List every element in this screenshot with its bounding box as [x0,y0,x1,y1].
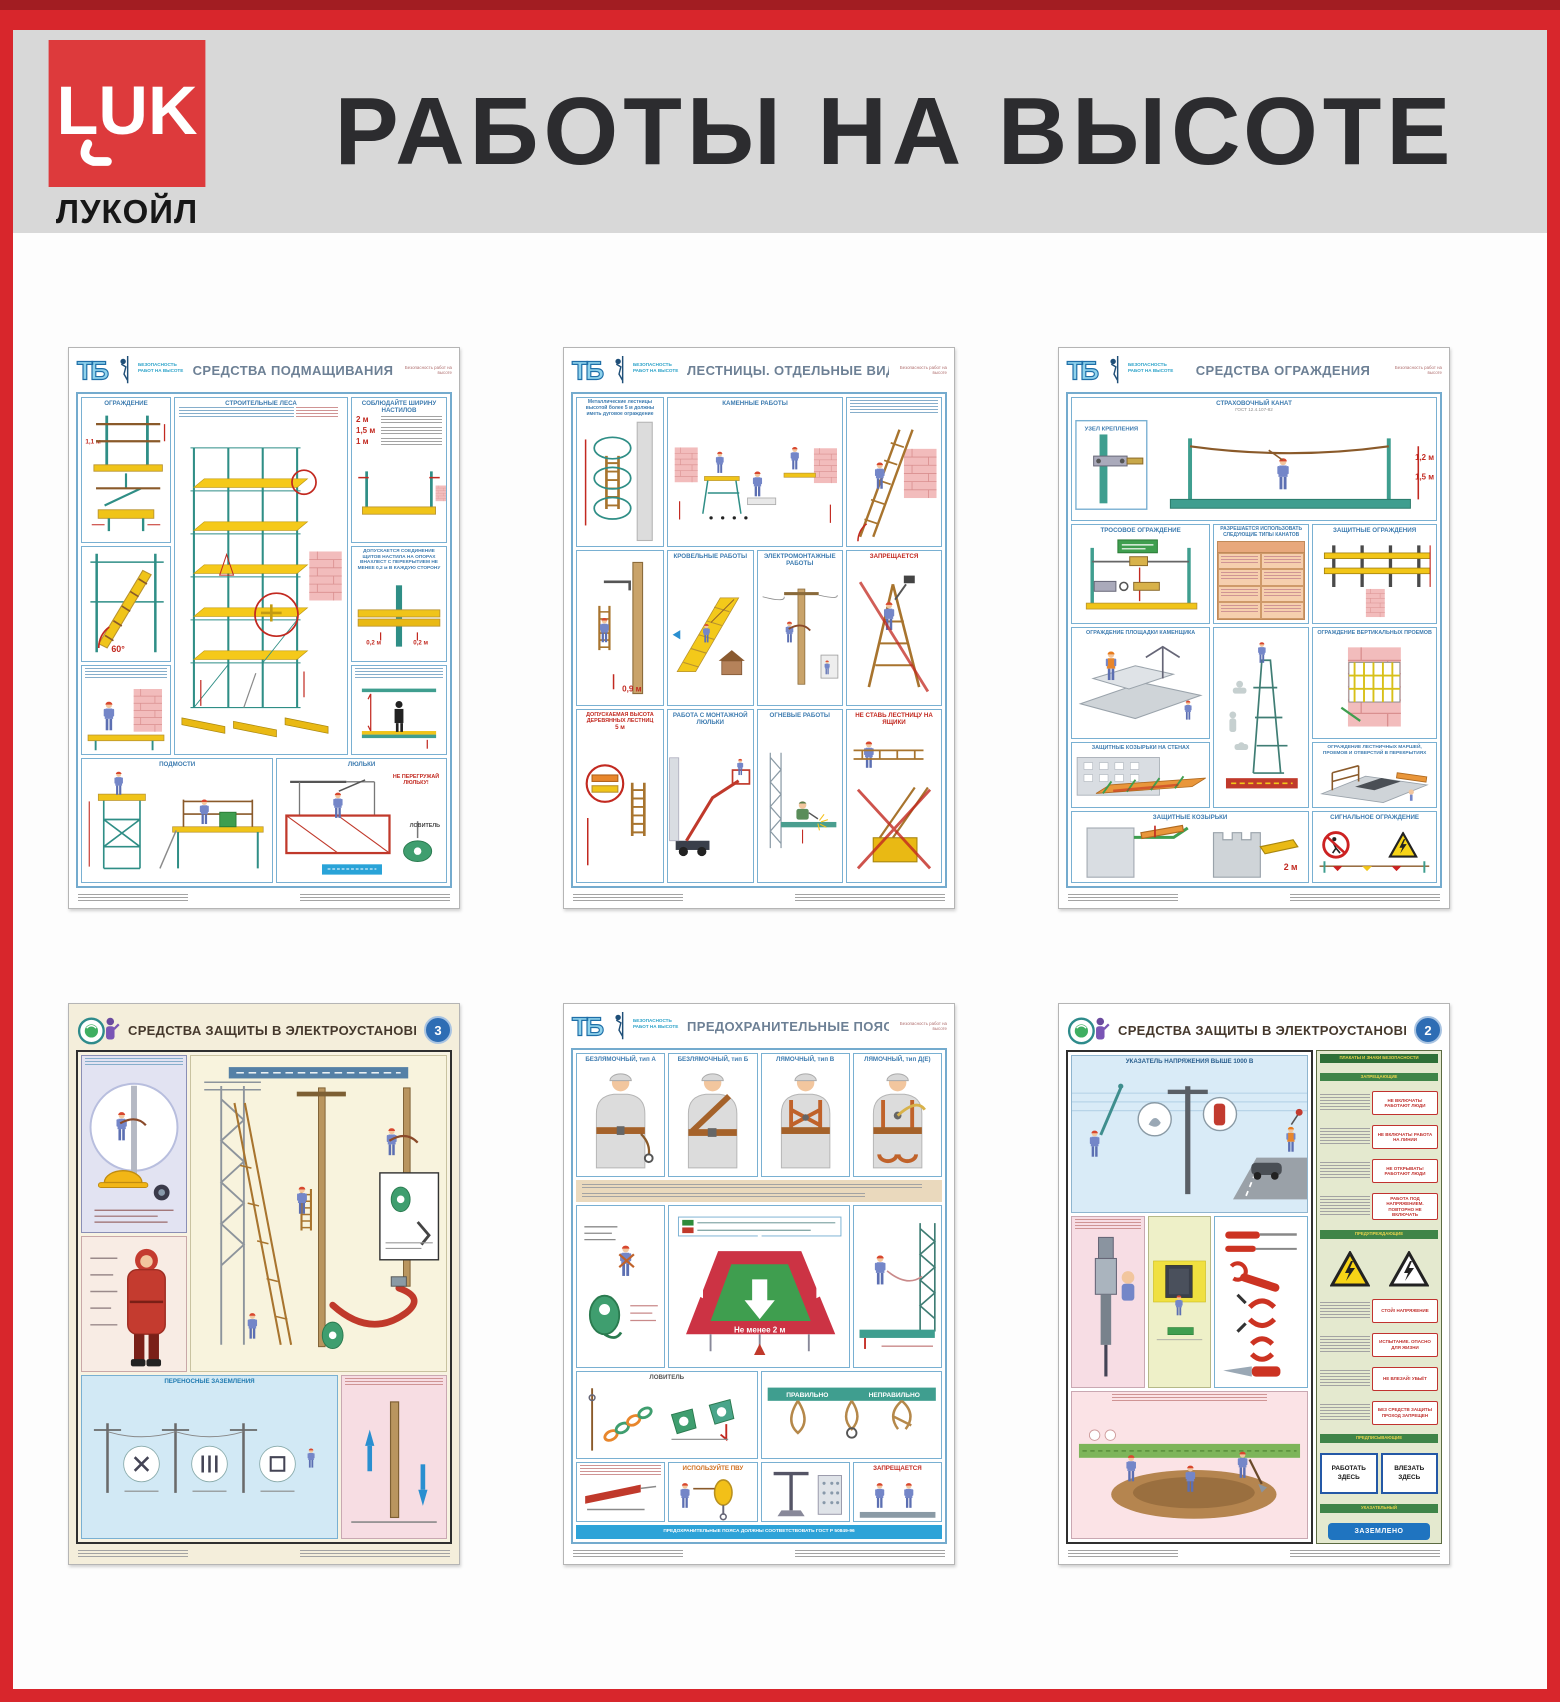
rabotat-zdes-sign: РАБОТАТЬ ЗДЕСЬ [1320,1453,1378,1494]
frame-top-line [0,0,1560,10]
welding-illustration [758,719,843,882]
electric-hazard-white-icon [1389,1251,1429,1287]
zazemleno-sign: ЗАЗЕМЛЕНО [1328,1523,1430,1540]
panel-worker-truss [853,1205,942,1368]
panel-ne-stav-lestnitsu: НЕ СТАВЬ ЛЕСТНИЦУ НА ЯЩИКИ [846,709,942,883]
safety-sign: БЕЗ СРЕДСТВ ЗАЩИТЫ ПРОХОД ЗАПРЕЩЕН [1372,1401,1438,1425]
safety-sign: НЕ ВКЛЮЧАТЬ! РАБОТАЮТ ЛЮДИ [1372,1091,1438,1115]
stand-header: LUK ЛУКОЙЛ РАБОТЫ НА ВЫСОТЕ [13,30,1547,233]
panel-belt-type-b: БЕЗЛЯМОЧНЫЙ, тип Б [668,1053,757,1177]
voltage-indicator-illustration [1072,1065,1307,1212]
poster5-footer [571,1544,947,1560]
digging-illustration [1072,1402,1307,1538]
panel-anchor-bar [576,1462,665,1522]
panel-kamennye-raboty: КАМЕННЫЕ РАБОТЫ [667,397,843,547]
signs-group-1: ЗАПРЕЩАЮЩИЕ [1320,1073,1438,1082]
warning-triangles [1320,1249,1438,1289]
panel-t-stand [761,1462,850,1522]
cage-ladder-illustration [577,417,663,546]
stair-illustration: 60° [82,547,170,661]
t-stand-illustration [762,1463,849,1521]
panel-kozyrki-na-stenah: ЗАЩИТНЫЕ КОЗЫРЬКИ НА СТЕНАХ [1071,742,1210,808]
poster4-footer [76,1544,452,1560]
poster6-title: СРЕДСТВА ЗАЩИТЫ В ЭЛЕКТРОУСТАНОВКАХ [1118,1023,1406,1038]
panel-pole-climb-circle [81,1055,187,1233]
canopy-illustration: 2 м [1072,821,1308,882]
safety-rope-illustration: УЗЕЛ КРЕПЛЕНИЯ 1,2 м 1,5 м [1072,412,1436,520]
roofing-illustration [668,560,753,705]
belt-a-illustration [577,1063,664,1176]
panel-title: ЗАЩИТНЫЕ КОЗЫРЬКИ НА СТЕНАХ [1072,743,1209,751]
sign-row: НЕ ВКЛЮЧАТЬ! РАБОТАЮТ ЛЮДИ [1320,1091,1438,1115]
poster4-header: СРЕДСТВА ЗАЩИТЫ В ЭЛЕКТРОУСТАНОВКАХ 3 [76,1010,452,1050]
sign-row: РАБОТА ПОД НАПРЯЖЕНИЕМ. ПОВТОРНО НЕ ВКЛЮ… [1320,1193,1438,1221]
panel-title: ОГРАЖДЕНИЕ ПЛОЩАДКИ КАМЕНЩИКА [1072,628,1209,636]
panel-carabiner [576,1205,665,1368]
panel-note: ДОПУСКАЕТСЯ СОЕДИНЕНИЕ ЩИТОВ НАСТИЛА НА … [352,547,446,571]
poster2-footer [571,888,947,904]
prescriptive-signs: РАБОТАТЬ ЗДЕСЬ ВЛЕЗАТЬ ЗДЕСЬ [1320,1453,1438,1494]
panel-lyulki: ЛЮЛЬКИ НЕ ПЕРЕГРУЖАЙ ЛЮЛЬКУ! ЛОВИТЕЛЬ [276,758,447,883]
panel-title: ОГРАЖДЕНИЕ ВЕРТИКАЛЬНЫХ ПРОЕМОВ [1313,628,1436,636]
panel-zapreshchaetsya: ЗАПРЕЩАЕТСЯ [853,1462,942,1522]
podmosti-illustration [82,768,272,882]
sign-row: НЕ ВКЛЮЧАТЬ! РАБОТА НА ЛИНИИ [1320,1125,1438,1149]
poster6-left-column: УКАЗАТЕЛЬ НАПРЯЖЕНИЯ ВЫШЕ 1000 В [1066,1050,1313,1544]
round-safety-logo-icon [1066,1013,1110,1047]
panel-title: СТРОИТЕЛЬНЫЕ ЛЕСА [175,398,347,407]
belt-type-label: БЕЗЛЯМОЧНЫЙ, тип А [577,1054,664,1063]
belt-type-label: ЛЯМОЧНЫЙ, тип В [762,1054,849,1063]
panel-zashchitnye-ograzhdeniya: ЗАЩИТНЫЕ ОГРАЖДЕНИЯ [1312,524,1437,624]
panel-title: ЗАЩИТНЫЕ КОЗЫРЬКИ [1072,812,1308,821]
pole-arrows-illustration [342,1386,446,1538]
signal-fence-illustration [1313,821,1436,882]
panel-title: ОГРАЖДЕНИЕ ЛЕСТНИЧНЫХ МАРШЕЙ, ПРОЕМОВ И … [1313,743,1436,756]
panel-belt-type-d: ЛЯМОЧНЫЙ, тип Д(Е) [853,1053,942,1177]
svg-text:0,2 м: 0,2 м [366,640,381,647]
series-note: БЕЗОПАСНОСТЬ РАБОТ НА ВЫСОТЕ [138,362,188,373]
panel-belt-type-a: БЕЗЛЯМОЧНЫЙ, тип А [576,1053,665,1177]
stand-title: РАБОТЫ НА ВЫСОТЕ [248,30,1542,233]
panel-title: СТРАХОВОЧНЫЙ КАНАТ [1072,398,1436,407]
poster5-gost-band: ПРЕДОХРАНИТЕЛЬНЫЕ ПОЯСА ДОЛЖНЫ СООТВЕТСТ… [576,1525,942,1539]
belt-v-illustration [762,1063,849,1176]
svg-text:ТБ: ТБ [1067,356,1098,386]
mason-illustration [82,680,170,754]
svg-text:ТБ: ТБ [572,1012,603,1042]
pole-work-illustration [758,567,843,705]
pole-scene-illustration [191,1056,446,1371]
safety-sign: СТОЙ! НАПРЯЖЕНИЕ [1372,1299,1438,1323]
panel-sling-right-wrong: ПРАВИЛЬНО НЕПРАВИЛЬНО [761,1371,943,1459]
panel-switchboard-worker [1148,1216,1211,1388]
boom-lift-illustration [668,726,753,882]
posters-grid: ТБ БЕЗОПАСНОСТЬ РАБОТ НА ВЫСОТЕ СРЕДСТВА… [13,233,1547,1565]
poster6-body: УКАЗАТЕЛЬ НАПРЯЖЕНИЯ ВЫШЕ 1000 В [1066,1050,1442,1544]
carabiner-illustration [577,1206,664,1367]
belt-b-illustration [669,1063,756,1176]
panel-shirina-nastilov: СОБЛЮДАЙТЕ ШИРИНУ НАСТИЛОВ 2 м 1,5 м 1 м [351,397,447,543]
panel-title: ЗАПРЕЩАЕТСЯ [847,551,941,560]
round-safety-logo-icon [76,1013,120,1047]
panel-montazhnaya-lyulka: РАБОТА С МОНТАЖНОЙ ЛЮЛЬКИ [667,709,754,883]
poster-zashchita-elektro-3[interactable]: СРЕДСТВА ЗАЩИТЫ В ЭЛЕКТРОУСТАНОВКАХ 3 [68,1003,460,1565]
floors-illustration [352,678,446,754]
panel-stroitelnye-lesa: СТРОИТЕЛЬНЫЕ ЛЕСА [174,397,348,755]
corner-note: Безопасность работ на высоте [893,1021,947,1031]
stand-board: LUK ЛУКОЙЛ РАБОТЫ НА ВЫСОТЕ ТБ БЕЗОПАСНО… [13,30,1547,1689]
poster1-footer [76,888,452,904]
series-note: БЕЗОПАСНОСТЬ РАБОТ НА ВЫСОТЕ [1128,362,1178,373]
vlezat-zdes-sign: ВЛЕЗАТЬ ЗДЕСЬ [1381,1453,1439,1494]
panel-pole-work-scene [190,1055,447,1372]
panel-insulated-tools [1214,1216,1308,1388]
panel-protective-suit [81,1236,187,1372]
poster3-body: СТРАХОВОЧНЫЙ КАНАТ ГОСТ 12.4.107-82 УЗЕЛ… [1066,392,1442,888]
panel-worker-bricks [81,665,171,755]
panel-title: ЭЛЕКТРОМОНТАЖНЫЕ РАБОТЫ [758,551,843,567]
safety-sign: РАБОТА ПОД НАПРЯЖЕНИЕМ. ПОВТОРНО НЕ ВКЛЮ… [1372,1193,1438,1221]
poster4-number-badge: 3 [424,1016,452,1044]
leaning-ladder-illustration [847,414,941,546]
panel-title: ТРОСОВОЕ ОГРАЖДЕНИЕ [1072,525,1209,534]
stepladder-illustration [847,560,941,705]
panel-title: ЛОВИТЕЛЬ [577,1372,757,1381]
panel-title: ОГНЕВЫЕ РАБОТЫ [758,710,843,719]
safety-sign: НЕ ОТКРЫВАТЬ! РАБОТАЮТ ЛЮДИ [1372,1159,1438,1183]
safety-sign: НЕ ВЛЕЗАЙ! УБЬЁТ [1372,1367,1438,1391]
lukoil-company-name: ЛУКОЙЛ [48,193,206,231]
poster6-middle-row [1071,1216,1308,1388]
panel-note: Металлические лестницы высотой более 5 м… [577,398,663,417]
opening-guard-illustration [1313,636,1436,738]
svg-text:ПРАВИЛЬНО: ПРАВИЛЬНО [786,1392,828,1399]
poster5-body: БЕЗЛЯМОЧНЫЙ, тип А БЕЗЛЯМОЧНЫЙ, тип Б [571,1048,947,1544]
truss-tie-illustration [854,1206,941,1367]
panel-zapreshchaetsya-hammer: ЗАПРЕЩАЕТСЯ [846,550,942,706]
panel-lestnichnye-marshi: ОГРАЖДЕНИЕ ЛЕСТНИЧНЫХ МАРШЕЙ, ПРОЕМОВ И … [1312,742,1437,808]
panel-title: ПЕРЕНОСНЫЕ ЗАЗЕМЛЕНИЯ [82,1376,337,1385]
cable-guard-illustration [1072,534,1209,623]
panel-vertikalnye-proemy: ОГРАЖДЕНИЕ ВЕРТИКАЛЬНЫХ ПРОЕМОВ [1312,627,1437,739]
lukoil-mark: LUK [57,72,198,149]
poster3-header: ТБ БЕЗОПАСНОСТЬ РАБОТ НА ВЫСОТЕ СРЕДСТВА… [1066,354,1442,392]
ladder-on-crate-illustration [847,726,941,882]
svg-text:60°: 60° [111,644,125,654]
svg-text:Не менее 2 м: Не менее 2 м [734,1325,786,1334]
panel-title: РАБОТА С МОНТАЖНОЙ ЛЮЛЬКИ [668,710,753,726]
poster4-body: ПЕРЕНОСНЫЕ ЗАЗЕМЛЕНИЯ [76,1050,452,1544]
panel-title: ЗАЩИТНЫЕ ОГРАЖДЕНИЯ [1313,525,1436,534]
signs-group-2: ПРЕДУПРЕЖДАЮЩИЕ [1320,1230,1438,1239]
panel-platform-diagram: Не менее 2 м [668,1205,850,1368]
signs-group-4: УКАЗАТЕЛЬНЫЙ [1320,1504,1438,1513]
svg-text:УЗЕЛ КРЕПЛЕНИЯ: УЗЕЛ КРЕПЛЕНИЯ [1085,427,1139,433]
tb-logo-icon: ТБ [571,354,629,387]
poster-sredstva-podmashchivaniya[interactable]: ТБ БЕЗОПАСНОСТЬ РАБОТ НА ВЫСОТЕ СРЕДСТВА… [68,347,460,909]
sign-row: ИСПЫТАНИЕ. ОПАСНО ДЛЯ ЖИЗНИ [1320,1333,1438,1357]
poster2-body: Металлические лестницы высотой более 5 м… [571,392,947,888]
panel-title: КРОВЕЛЬНЫЕ РАБОТЫ [668,551,753,560]
poster5-header: ТБ БЕЗОПАСНОСТЬ РАБОТ НА ВЫСОТЕ ПРЕДОХРА… [571,1010,947,1048]
wooden-ladder-illustration [577,732,663,882]
belt-type-label: ЛЯМОЧНЫЙ, тип Д(Е) [854,1054,941,1063]
svg-text:НЕПРАВИЛЬНО: НЕПРАВИЛЬНО [868,1392,919,1399]
poster1-header: ТБ БЕЗОПАСНОСТЬ РАБОТ НА ВЫСОТЕ СРЕДСТВА… [76,354,452,392]
poster3-title: СРЕДСТВА ОГРАЖДЕНИЯ [1182,363,1384,378]
pvu-illustration [669,1472,756,1521]
panel-title: УКАЗАТЕЛЬ НАПРЯЖЕНИЯ ВЫШЕ 1000 В [1072,1056,1307,1065]
wall-canopy-illustration [1072,751,1209,807]
series-note: БЕЗОПАСНОСТЬ РАБОТ НА ВЫСОТЕ [633,1018,683,1029]
sign-row: НЕ ВЛЕЗАЙ! УБЬЁТ [1320,1367,1438,1391]
poster-zashchita-elektro-2[interactable]: СРЕДСТВА ЗАЩИТЫ В ЭЛЕКТРОУСТАНОВКАХ 2 УК… [1058,1003,1450,1565]
belts-caption-band [576,1180,942,1202]
panel-stair-60: 60° [81,546,171,662]
series-note: БЕЗОПАСНОСТЬ РАБОТ НА ВЫСОТЕ [633,362,683,373]
height-value: 5 м [577,724,663,731]
panel-zashchitnye-kozyrki: ЗАЩИТНЫЕ КОЗЫРЬКИ 2 м [1071,811,1309,883]
tb-logo-icon: ТБ [1066,354,1124,387]
fall-sequence-illustration [1214,628,1308,807]
guardrail-illustration: 1,1 м [82,407,170,542]
sign-row: СТОЙ! НАПРЯЖЕНИЕ [1320,1299,1438,1323]
two-workers-beam-illustration [854,1472,941,1521]
panel-title: ЛЮЛЬКИ [277,759,446,768]
panel-title: ЗАПРЕЩАЕТСЯ [854,1463,941,1472]
poster2-title: ЛЕСТНИЦЫ. ОТДЕЛЬНЫЕ ВИДЫ РАБОТ [687,363,889,378]
mason-platform-illustration [1072,636,1209,738]
sign-row: НЕ ОТКРЫВАТЬ! РАБОТАЮТ ЛЮДИ [1320,1159,1438,1183]
panel-ognevye: ОГНЕВЫЕ РАБОТЫ [757,709,844,883]
panel-title: ДОПУСКАЕМАЯ ВЫСОТА ДЕРЕВЯННЫХ ЛЕСТНИЦ [577,710,663,724]
protective-fence-illustration [1313,534,1436,623]
platform-diagram-illustration: Не менее 2 м [669,1206,849,1367]
switchboard-illustration [1149,1217,1210,1387]
electric-hazard-icon [1330,1251,1370,1287]
belt-d-illustration [854,1063,941,1176]
suit-illustration [82,1237,186,1371]
overload-warning: НЕ ПЕРЕГРУЖАЙ ЛЮЛЬКУ! [388,774,444,786]
panel-signalnoe: СИГНАЛЬНОЕ ОГРАЖДЕНИЕ [1312,811,1437,883]
belt-type-label: БЕЗЛЯМОЧНЫЙ, тип Б [669,1054,756,1063]
panel-canat-table: РАЗРЕШАЕТСЯ ИСПОЛЬЗОВАТЬ СЛЕДУЮЩИЕ ТИПЫ … [1213,524,1309,624]
panel-grounding-order [341,1375,447,1539]
panel-perenosnye-zazemleniya: ПЕРЕНОСНЫЕ ЗАЗЕМЛЕНИЯ [81,1375,338,1539]
sling-illustration: ПРАВИЛЬНО НЕПРАВИЛЬНО [762,1372,942,1458]
masonry-illustration [668,407,842,546]
panel-title: ПОДМОСТИ [82,759,272,768]
svg-text:0,2 м: 0,2 м [413,640,428,647]
panel-person-between-floors [351,665,447,755]
panel-falling-man [1213,627,1309,808]
corner-note: Безопасность работ на высоте [398,365,452,375]
panel-strahovochny-kanat: СТРАХОВОЧНЫЙ КАНАТ ГОСТ 12.4.107-82 УЗЕЛ… [1071,397,1437,521]
panel-ukazatel-napryazheniya: УКАЗАТЕЛЬ НАПРЯЖЕНИЯ ВЫШЕ 1000 В [1071,1055,1308,1213]
panel-title: КАМЕННЫЕ РАБОТЫ [668,398,842,407]
panel-hook-ladder: 0,9 м [576,550,664,706]
climber-circle-illustration [82,1066,186,1232]
poster6-signs-column: ПЛАКАТЫ И ЗНАКИ БЕЗОПАСНОСТИ ЗАПРЕЩАЮЩИЕ… [1316,1050,1442,1544]
stair-opening-illustration [1313,756,1436,807]
grounding-illustration [82,1385,337,1538]
poster6-header: СРЕДСТВА ЗАЩИТЫ В ЭЛЕКТРОУСТАНОВКАХ 2 [1066,1010,1442,1050]
poster6-number-badge: 2 [1414,1016,1442,1044]
deck-width-illustration [352,447,446,542]
corner-note: Безопасность работ на высоте [893,365,947,375]
panel-title: ИСПОЛЬЗУЙТЕ ПВУ [669,1463,756,1472]
overlap-illustration: 0,2 м 0,2 м [352,571,446,661]
safety-sign: НЕ ВКЛЮЧАТЬ! РАБОТА НА ЛИНИИ [1372,1125,1438,1149]
poster3-footer [1066,888,1442,904]
tb-logo-icon: ТБ [76,354,134,387]
panel-title: НЕ СТАВЬ ЛЕСТНИЦУ НА ЯЩИКИ [847,710,941,726]
lukoil-logo-icon: LUK [48,40,206,187]
poster4-title: СРЕДСТВА ЗАЩИТЫ В ЭЛЕКТРОУСТАНОВКАХ [128,1023,416,1038]
poster1-bottom-row: ПОДМОСТИ ЛЮЛЬКИ [81,758,447,883]
panel-krovelnye: КРОВЕЛЬНЫЕ РАБОТЫ [667,550,754,706]
poster2-header: ТБ БЕЗОПАСНОСТЬ РАБОТ НА ВЫСОТЕ ЛЕСТНИЦЫ… [571,354,947,392]
panel-title: РАЗРЕШАЕТСЯ ИСПОЛЬЗОВАТЬ СЛЕДУЮЩИЕ ТИПЫ … [1214,525,1308,539]
lukoil-logo: LUK ЛУКОЙЛ [48,40,206,231]
panel-title: СОБЛЮДАЙТЕ ШИРИНУ НАСТИЛОВ [352,398,446,414]
panel-belt-type-v: ЛЯМОЧНЫЙ, тип В [761,1053,850,1177]
panel-pvu: ИСПОЛЬЗУЙТЕ ПВУ [668,1462,757,1522]
corner-note: Безопасность работ на высоте [1388,365,1442,375]
svg-text:ТБ: ТБ [77,356,108,386]
panel-elektromontazh: ЭЛЕКТРОМОНТАЖНЫЕ РАБОТЫ [757,550,844,706]
svg-text:2 м: 2 м [1284,862,1298,872]
panel-podmosti: ПОДМОСТИ [81,758,273,883]
signs-header: ПЛАКАТЫ И ЗНАКИ БЕЗОПАСНОСТИ [1320,1054,1438,1063]
safety-sign: ИСПЫТАНИЕ. ОПАСНО ДЛЯ ЖИЗНИ [1372,1333,1438,1357]
panel-earthworks-scene [1071,1391,1308,1539]
panel-nastil-overlap: ДОПУСКАЕТСЯ СОЕДИНЕНИЕ ЩИТОВ НАСТИЛА НА … [351,546,447,662]
panel-lovitel-chain: ЛОВИТЕЛЬ [576,1371,758,1459]
panel-dopuskaemaya-vysota: ДОПУСКАЕМАЯ ВЫСОТА ДЕРЕВЯННЫХ ЛЕСТНИЦ 5 … [576,709,664,883]
rope-types-table [1217,541,1305,621]
hook-ladder-illustration: 0,9 м [577,551,663,705]
tools-illustration [1215,1217,1307,1387]
panel-title: ОГРАЖДЕНИЕ [82,398,170,407]
tb-logo-icon: ТБ [571,1010,629,1043]
chain-hooks-illustration [577,1381,757,1458]
poster-lestnitsy[interactable]: ТБ БЕЗОПАСНОСТЬ РАБОТ НА ВЫСОТЕ ЛЕСТНИЦЫ… [563,347,955,909]
poster-sredstva-ograzhdeniya[interactable]: ТБ БЕЗОПАСНОСТЬ РАБОТ НА ВЫСОТЕ СРЕДСТВА… [1058,347,1450,909]
signs-group-3: ПРЕДПИСЫВАЮЩИЕ [1320,1434,1438,1443]
svg-text:1,2 м: 1,2 м [1415,453,1434,462]
poster5-title: ПРЕДОХРАНИТЕЛЬНЫЕ ПОЯСА [687,1019,889,1034]
svg-text:1,5 м: 1,5 м [1415,473,1434,482]
poster-predohranitelnye-poyasa[interactable]: ТБ БЕЗОПАСНОСТЬ РАБОТ НА ВЫСОТЕ ПРЕДОХРА… [563,1003,955,1565]
anchor-illustration [577,1475,664,1521]
poster6-footer [1066,1544,1442,1560]
panel-cage-ladder: Металлические лестницы высотой более 5 м… [576,397,664,547]
svg-text:0,9 м: 0,9 м [622,684,641,693]
svg-text:ТБ: ТБ [572,356,603,386]
scaffold-illustration [175,417,347,754]
panel-ograzhdenie-ploshchadki: ОГРАЖДЕНИЕ ПЛОЩАДКИ КАМЕНЩИКА [1071,627,1210,739]
poster1-title: СРЕДСТВА ПОДМАЩИВАНИЯ [192,363,394,378]
panel-ograzhdenie: ОГРАЖДЕНИЕ 1,1 м [81,397,171,543]
piercer-illustration [1072,1229,1144,1387]
sign-row: БЕЗ СРЕДСТВ ЗАЩИТЫ ПРОХОД ЗАПРЕЩЕН [1320,1401,1438,1425]
panel-ladder-near-wall [846,397,942,547]
poster1-body: ОГРАЖДЕНИЕ 1,1 м СТРОИТЕЛЬНЫЕ ЛЕСА [76,392,452,888]
panel-title: СИГНАЛЬНОЕ ОГРАЖДЕНИЕ [1313,812,1436,821]
panel-trosovoe: ТРОСОВОЕ ОГРАЖДЕНИЕ [1071,524,1210,624]
poster4-bottom-row: ПЕРЕНОСНЫЕ ЗАЗЕМЛЕНИЯ [81,1375,447,1539]
lovitel-label: ЛОВИТЕЛЬ [410,823,440,829]
panel-cable-piercer [1071,1216,1145,1388]
